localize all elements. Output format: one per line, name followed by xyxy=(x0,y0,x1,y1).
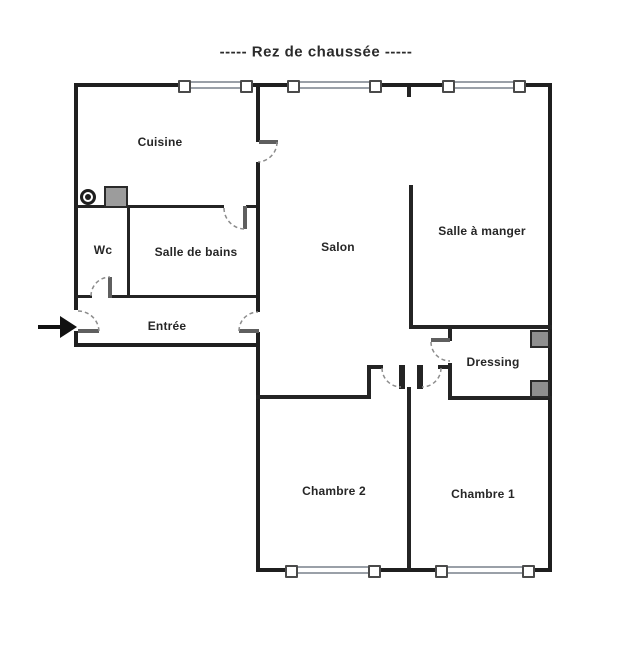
door-arc-salle-de-bains xyxy=(224,208,245,229)
door-arc-dressing xyxy=(431,342,450,361)
plan-title: ----- Rez de chaussée ----- xyxy=(220,44,413,61)
door-arc-wc xyxy=(91,277,110,296)
room-label-salle-de-bains: Salle de bains xyxy=(155,245,238,259)
room-label-chambre1: Chambre 1 xyxy=(451,487,515,501)
room-label-dressing: Dressing xyxy=(467,355,520,369)
door-arc-cuisine-salon xyxy=(258,142,277,162)
door-arc-entrance xyxy=(78,311,99,332)
room-label-salon: Salon xyxy=(321,240,355,254)
room-label-salle-a-manger: Salle à manger xyxy=(438,224,526,238)
room-label-chambre2: Chambre 2 xyxy=(302,484,366,498)
floor-plan: ----- Rez de chaussée ----- xyxy=(0,0,640,647)
room-label-wc: Wc xyxy=(94,243,112,257)
door-arc-chambre2 xyxy=(382,368,401,387)
door-swing-arcs xyxy=(0,0,640,647)
room-label-cuisine: Cuisine xyxy=(138,135,183,149)
door-arc-chambre1 xyxy=(422,368,441,387)
room-label-entree: Entrée xyxy=(148,319,187,333)
door-arc-entree-salon xyxy=(239,312,258,331)
